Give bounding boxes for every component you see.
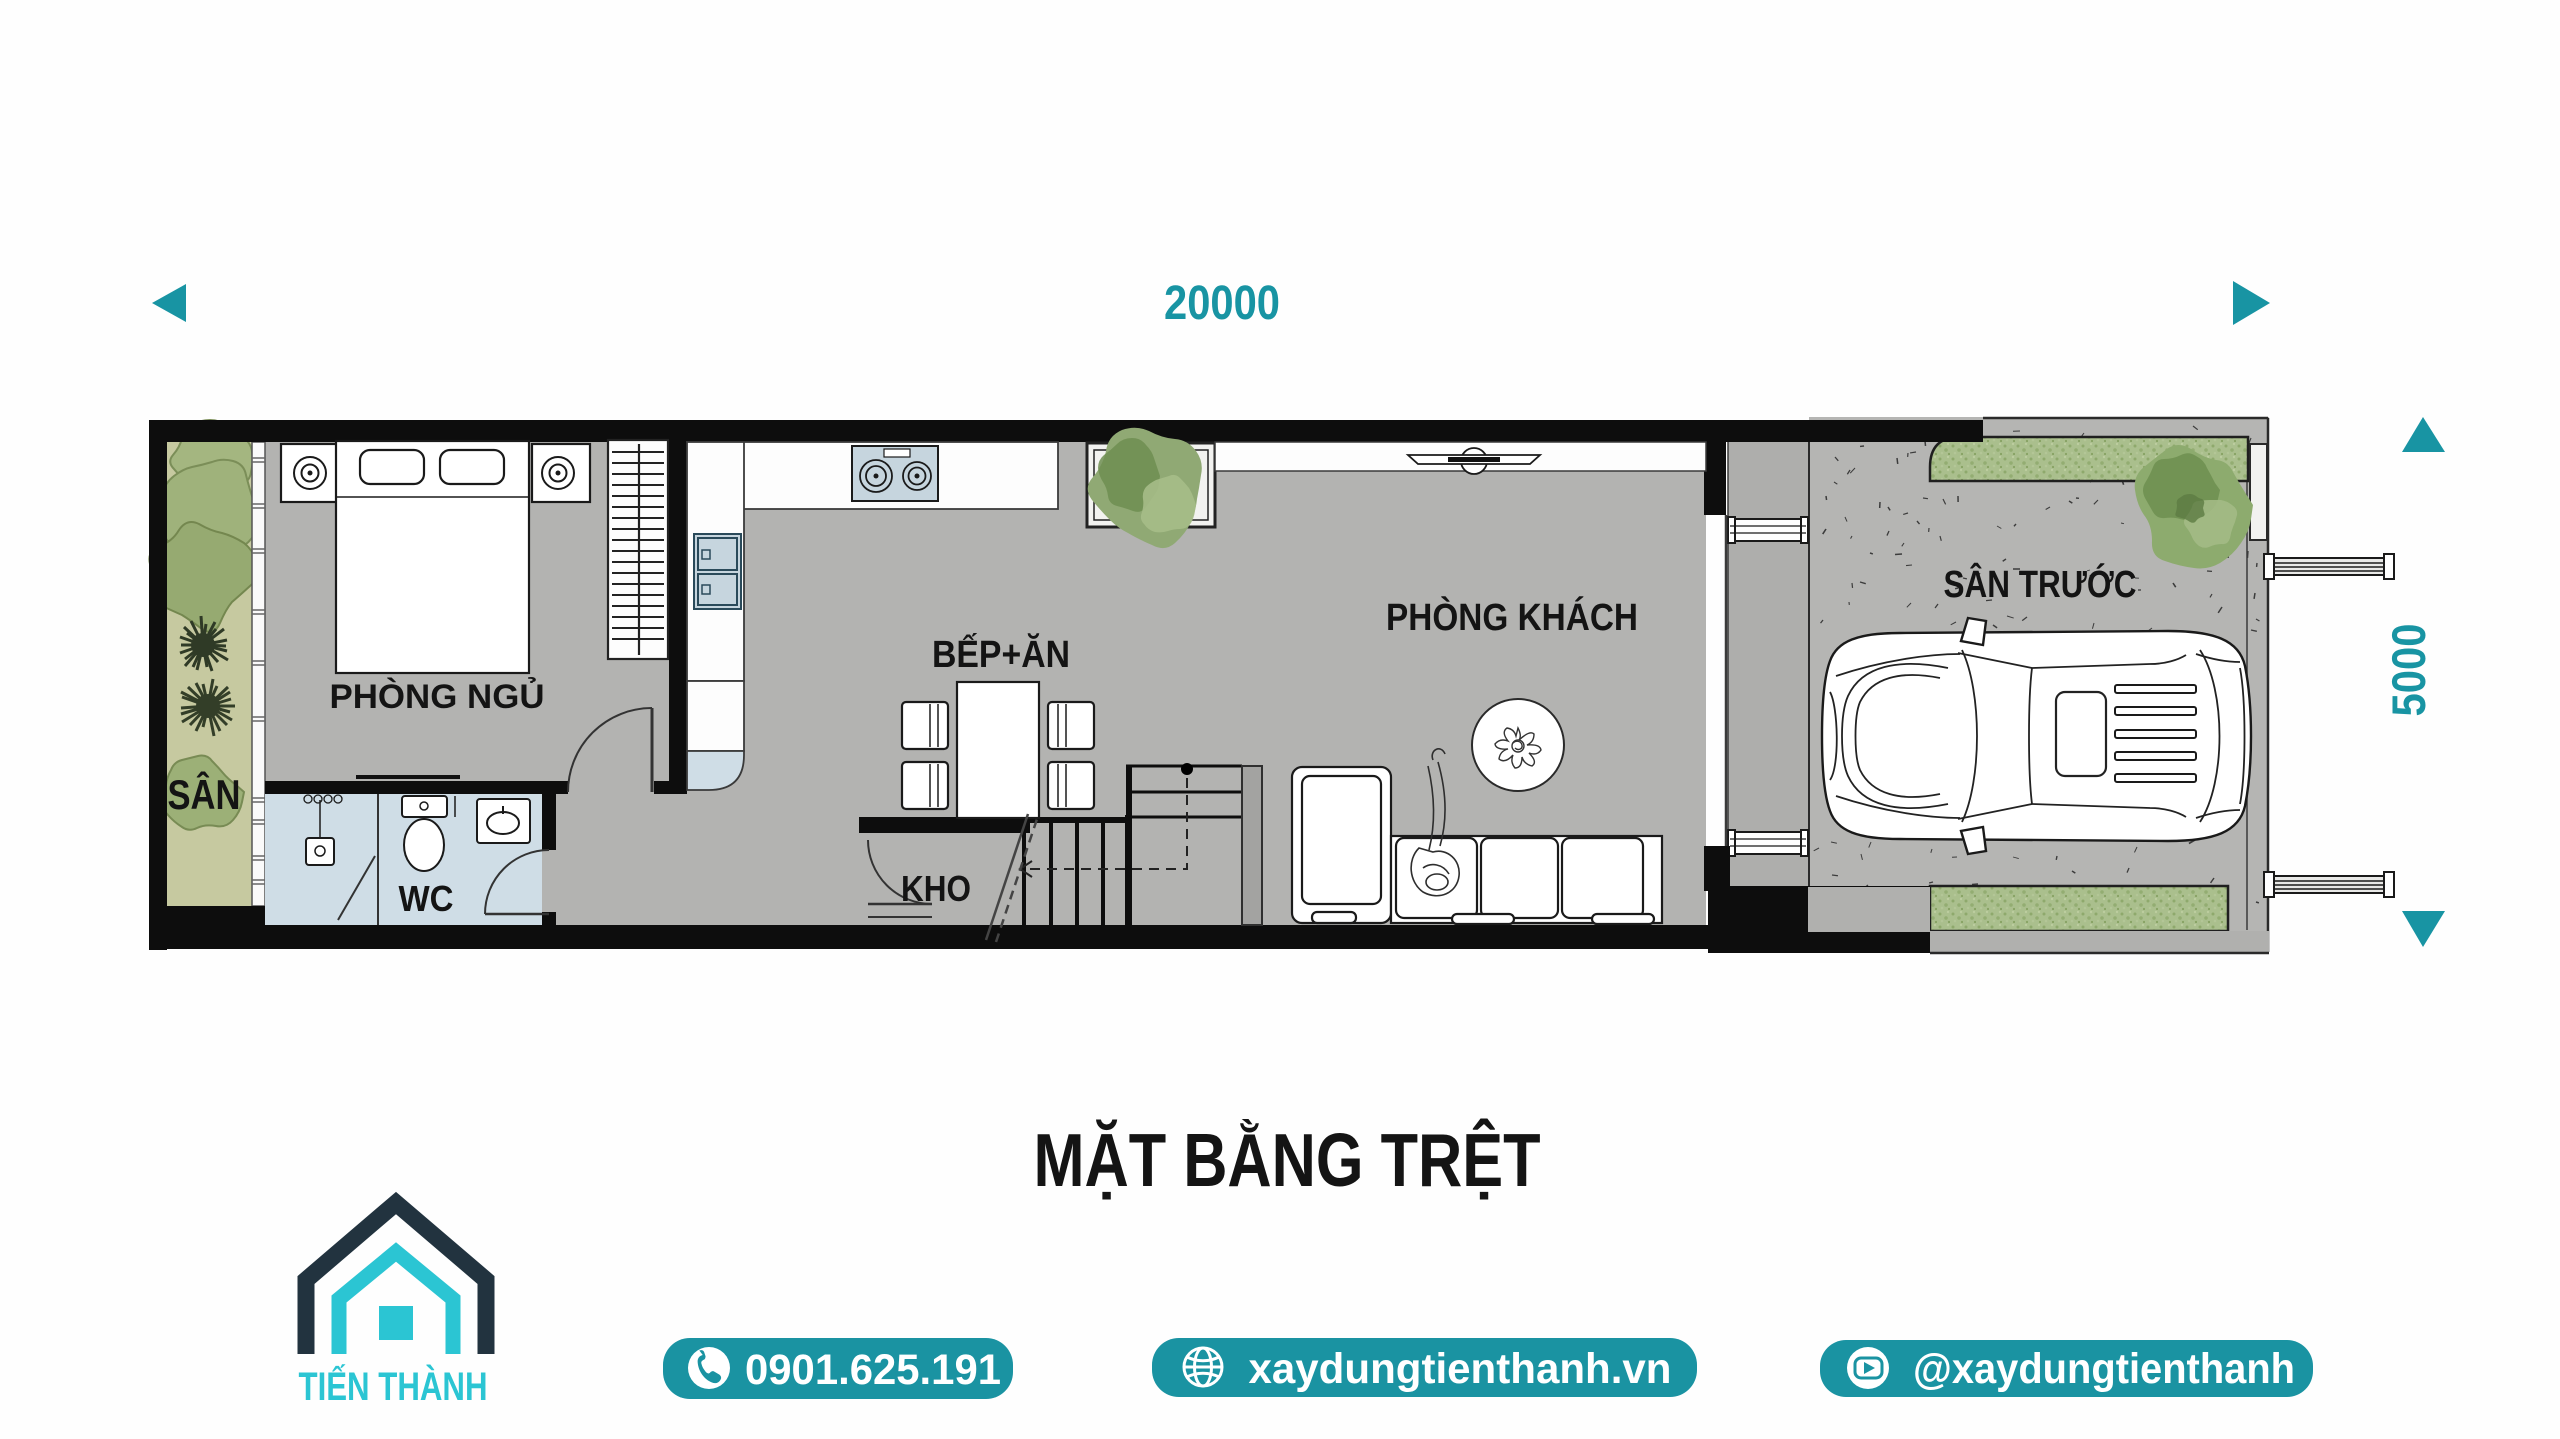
svg-text:WC: WC xyxy=(399,878,454,919)
svg-text:0901.625.191: 0901.625.191 xyxy=(745,1346,1001,1394)
svg-text:TIẾN THÀNH: TIẾN THÀNH xyxy=(299,1363,488,1409)
svg-text:PHÒNG NGỦ: PHÒNG NGỦ xyxy=(330,678,545,716)
svg-text:KHO: KHO xyxy=(901,868,971,909)
svg-text:PHÒNG KHÁCH: PHÒNG KHÁCH xyxy=(1386,595,1638,639)
svg-text:20000: 20000 xyxy=(1164,277,1280,330)
svg-text:5000: 5000 xyxy=(2382,624,2435,717)
svg-text:SÂN: SÂN xyxy=(168,770,241,818)
svg-text:xaydungtienthanh.vn: xaydungtienthanh.vn xyxy=(1249,1345,1672,1393)
svg-text:BẾP+ĂN: BẾP+ĂN xyxy=(932,632,1070,676)
svg-text:SÂN TRƯỚC: SÂN TRƯỚC xyxy=(1944,562,2137,606)
svg-text:@xaydungtienthanh: @xaydungtienthanh xyxy=(1913,1345,2295,1393)
svg-text:MẶT BẰNG TRỆT: MẶT BẰNG TRỆT xyxy=(1034,1118,1541,1202)
